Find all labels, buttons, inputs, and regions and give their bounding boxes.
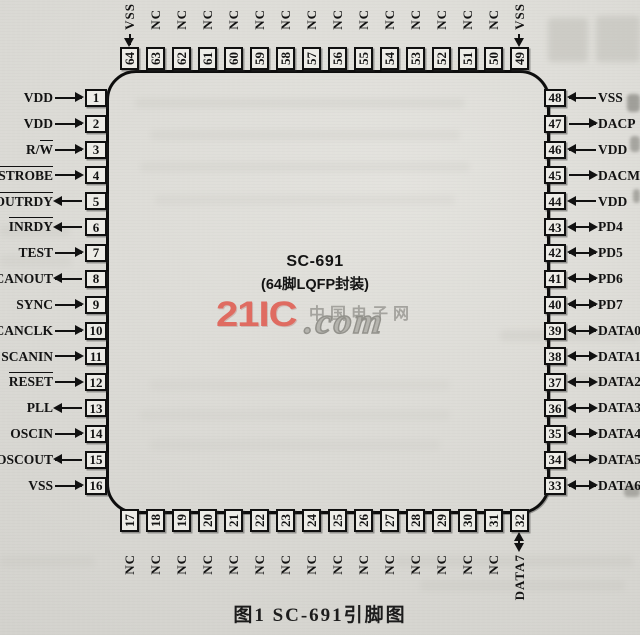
pin-number: 29	[435, 514, 448, 527]
pin: INRDY 6	[0, 214, 107, 240]
pin-number: 47	[549, 117, 562, 130]
pin-label: NC	[201, 9, 214, 30]
pin-label: NC	[253, 9, 266, 30]
pin-label: NC	[435, 9, 448, 30]
pin-number: 23	[279, 514, 292, 527]
pin: SCANCLK 10	[0, 318, 107, 344]
pin-direction-arrow	[569, 200, 596, 202]
pin-box: 14	[85, 425, 107, 443]
pin-direction-arrow	[129, 34, 131, 45]
pin-direction-arrow	[55, 278, 82, 280]
pin: 39 DATA0	[544, 318, 640, 344]
pin-number: 5	[93, 195, 100, 208]
pin-number: 53	[409, 52, 422, 65]
pin-number: 10	[90, 324, 103, 337]
chip-label-block: SC-691 (64脚LQFP封装)	[109, 253, 521, 294]
pin-box: 6	[85, 218, 107, 236]
pin-number: 57	[305, 52, 318, 65]
pin-box: 50	[484, 47, 503, 70]
pin: 29 NC	[428, 508, 454, 600]
pin-box: 42	[544, 244, 566, 262]
pin-box: 15	[85, 451, 107, 469]
pin-number: 22	[253, 514, 266, 527]
pin-number: 55	[357, 52, 370, 65]
pin-label: VSS	[28, 479, 53, 493]
pin-box: 35	[544, 425, 566, 443]
pin-label: NC	[305, 554, 318, 575]
pin-number: 20	[201, 514, 214, 527]
pin-direction-arrow	[569, 355, 596, 357]
pin-box: 55	[354, 47, 373, 70]
pin-label: STROBE	[0, 169, 53, 183]
pin-box: 11	[85, 347, 107, 365]
pin-number: 48	[549, 91, 562, 104]
pin-number: 11	[90, 350, 102, 363]
pin-number: 39	[549, 324, 562, 337]
pin-number: 32	[513, 514, 526, 527]
pin: 17 NC	[117, 508, 143, 600]
pin: NC 56	[325, 0, 351, 70]
pin-label: VSS	[513, 3, 526, 30]
pin-box: 12	[85, 373, 107, 391]
pin-box: 61	[198, 47, 217, 70]
pin-label: NC	[383, 554, 396, 575]
pin-label: NC	[175, 554, 188, 575]
pin-box: 10	[85, 322, 107, 340]
pin-box: 8	[85, 270, 107, 288]
pin-label: NC	[409, 554, 422, 575]
pin-row-bottom: 17 NC 18 NC 19 NC 20 NC	[117, 508, 532, 600]
pin: R/W 3	[0, 137, 107, 163]
pin-number: 62	[175, 52, 188, 65]
pin: NC 52	[428, 0, 454, 70]
pin-number: 24	[305, 514, 318, 527]
ink-bleed-smudge	[596, 16, 640, 62]
pin: VDD 1	[0, 85, 107, 111]
pin: NC 62	[169, 0, 195, 70]
pin-box: 36	[544, 399, 566, 417]
pin-direction-arrow	[569, 174, 596, 176]
pin-label: DATA4	[598, 427, 640, 441]
pin-direction-arrow	[55, 174, 82, 176]
pin-box: 58	[276, 47, 295, 70]
pin: 20 NC	[195, 508, 221, 600]
pin-number: 15	[90, 453, 103, 466]
pin-label: SCANIN	[1, 350, 53, 364]
pin-label: NC	[331, 554, 344, 575]
pin-box: 53	[406, 47, 425, 70]
pin-box: 45	[544, 166, 566, 184]
pin: STROBE 4	[0, 163, 107, 189]
pin-number: 58	[279, 52, 292, 65]
pin-label: RESET	[9, 375, 53, 389]
pin-number: 18	[149, 514, 162, 527]
pin-label: NC	[253, 554, 266, 575]
ink-bleed-smudge	[548, 18, 588, 62]
pin-box: 39	[544, 322, 566, 340]
pin-label: VSS	[123, 3, 136, 30]
pin-label: NC	[487, 554, 500, 575]
pin-number: 9	[93, 298, 100, 311]
pin-label: DATA6	[598, 479, 640, 493]
pin-row-top: VSS 64 NC 63 NC 62 NC 61	[117, 0, 532, 70]
pin-label: OSCIN	[10, 427, 53, 441]
pin-box: 33	[544, 477, 566, 495]
pin: 26 NC	[350, 508, 376, 600]
pin: 18 NC	[143, 508, 169, 600]
pin-label: NC	[435, 554, 448, 575]
pin-direction-arrow	[569, 97, 596, 99]
pin-box: 32	[510, 509, 529, 532]
pin: 34 DATA5	[544, 447, 640, 473]
pin-box: 17	[120, 509, 139, 532]
pin-direction-arrow	[55, 252, 82, 254]
pin-label: NC	[331, 9, 344, 30]
pin-box: 44	[544, 192, 566, 210]
pin-label: NC	[175, 9, 188, 30]
pin-label: DATA3	[598, 401, 640, 415]
pin-label: SCANOUT	[0, 272, 53, 286]
pin-direction-arrow	[569, 304, 596, 306]
pin-direction-arrow	[569, 330, 596, 332]
pin: VSS 49	[506, 0, 532, 70]
pin-label: SYNC	[16, 298, 53, 312]
pin-number: 37	[549, 376, 562, 389]
pin: NC 55	[350, 0, 376, 70]
pin-label: NC	[149, 554, 162, 575]
pin-box: 19	[172, 509, 191, 532]
pin-box: 38	[544, 347, 566, 365]
pin-box: 59	[250, 47, 269, 70]
pin: 46 VDD	[544, 137, 640, 163]
pin-box: 30	[458, 509, 477, 532]
pin-label: NC	[461, 9, 474, 30]
pin-direction-arrow	[55, 407, 82, 409]
pin-number: 7	[93, 246, 100, 259]
pin-box: 48	[544, 89, 566, 107]
pin-number: 61	[201, 52, 214, 65]
pin-label: NC	[227, 9, 240, 30]
pin-label: NC	[201, 554, 214, 575]
pin-number: 38	[549, 350, 562, 363]
pin-box: 51	[458, 47, 477, 70]
pin-number: 1	[93, 91, 100, 104]
pin-label: NC	[123, 554, 136, 575]
pin-number: 51	[461, 52, 474, 65]
pin-box: 13	[85, 399, 107, 417]
pin-number: 35	[549, 427, 562, 440]
pin: 28 NC	[402, 508, 428, 600]
pin: 41 PD6	[544, 266, 640, 292]
pin: PLL 13	[0, 395, 107, 421]
pin: 45 DACM	[544, 163, 640, 189]
pin-label: DATA0	[598, 324, 640, 338]
pin-box: 47	[544, 115, 566, 133]
figure-caption: 图1 SC-691引脚图	[0, 600, 640, 627]
chip-body: SC-691 (64脚LQFP封装)	[106, 70, 550, 514]
pin-box: 64	[120, 47, 139, 70]
pin-number: 25	[331, 514, 344, 527]
pin-direction-arrow	[55, 226, 82, 228]
pin: NC 50	[480, 0, 506, 70]
pin: 30 NC	[454, 508, 480, 600]
pin-box: 43	[544, 218, 566, 236]
pin-number: 33	[549, 479, 562, 492]
pin: NC 58	[273, 0, 299, 70]
pin-direction-arrow	[55, 304, 82, 306]
pin-label: NC	[357, 9, 370, 30]
pin-direction-arrow	[569, 149, 596, 151]
pin-label: NC	[279, 554, 292, 575]
pin-label: VDD	[24, 117, 53, 131]
pin-label: NC	[383, 9, 396, 30]
pin-box: 41	[544, 270, 566, 288]
pin-label: R/W	[26, 143, 53, 157]
pin: 33 DATA6	[544, 473, 640, 499]
pin-direction-arrow	[55, 97, 82, 99]
pin-direction-arrow	[55, 459, 82, 461]
pin-label: DACP	[598, 117, 636, 131]
pin-number: 30	[461, 514, 474, 527]
pin: OSCIN 14	[0, 421, 107, 447]
pin: OUTRDY 5	[0, 188, 107, 214]
pin-number: 43	[549, 221, 562, 234]
pin: 19 NC	[169, 508, 195, 600]
pin: 23 NC	[273, 508, 299, 600]
pin-box: 1	[85, 89, 107, 107]
pin-number: 28	[409, 514, 422, 527]
pin-box: 31	[484, 509, 503, 532]
pin-number: 63	[149, 52, 162, 65]
pin: 27 NC	[376, 508, 402, 600]
pin: 43 PD4	[544, 214, 640, 240]
pin-box: 20	[198, 509, 217, 532]
pin-box: 49	[510, 47, 529, 70]
pin-box: 22	[250, 509, 269, 532]
pin-box: 46	[544, 141, 566, 159]
pin-box: 16	[85, 477, 107, 495]
pin: NC 61	[195, 0, 221, 70]
pin-label: OUTRDY	[0, 195, 53, 209]
pin-number: 59	[253, 52, 266, 65]
pin: NC 59	[247, 0, 273, 70]
pin-number: 26	[357, 514, 370, 527]
pin: NC 54	[376, 0, 402, 70]
pin-number: 54	[383, 52, 396, 65]
pin-box: 24	[302, 509, 321, 532]
pin-number: 14	[90, 427, 103, 440]
pin-direction-arrow	[569, 485, 596, 487]
pin-number: 8	[93, 272, 100, 285]
pin-label: TEST	[18, 246, 53, 260]
pin-number: 52	[435, 52, 448, 65]
pin-label: SCANCLK	[0, 324, 53, 338]
pin: 47 DACP	[544, 111, 640, 137]
pin-direction-arrow	[55, 433, 82, 435]
pin-number: 46	[549, 143, 562, 156]
pin-direction-arrow	[518, 34, 520, 45]
pin: 36 DATA3	[544, 395, 640, 421]
pin-label: NC	[279, 9, 292, 30]
pin-direction-arrow	[569, 381, 596, 383]
pin-number: 17	[123, 514, 136, 527]
pin-number: 64	[123, 52, 136, 65]
pin-box: 60	[224, 47, 243, 70]
pin-direction-arrow	[55, 149, 82, 151]
pin: NC 63	[143, 0, 169, 70]
pin-direction-arrow	[569, 123, 596, 125]
pin-direction-arrow	[55, 485, 82, 487]
pin-number: 6	[93, 221, 100, 234]
pin-number: 45	[549, 169, 562, 182]
pin-direction-arrow	[569, 459, 596, 461]
chip-name: SC-691	[109, 253, 521, 271]
pin-direction-arrow	[55, 200, 82, 202]
pin-label: PLL	[27, 401, 53, 415]
pin-box: 34	[544, 451, 566, 469]
pin-label: DATA7	[513, 554, 526, 600]
pin: SCANIN 11	[0, 343, 107, 369]
pin-box: 62	[172, 47, 191, 70]
pin-direction-arrow	[55, 330, 82, 332]
pin: OSCOUT 15	[0, 447, 107, 473]
pin-box: 3	[85, 141, 107, 159]
pin-number: 56	[331, 52, 344, 65]
pin-number: 36	[549, 402, 562, 415]
pin-box: 52	[432, 47, 451, 70]
pin-box: 25	[328, 509, 347, 532]
pin: VSS 64	[117, 0, 143, 70]
pin: 37 DATA2	[544, 369, 640, 395]
pin-number: 3	[93, 143, 100, 156]
pin-direction-arrow	[569, 433, 596, 435]
pin-number: 21	[227, 514, 240, 527]
pin-label: VSS	[598, 91, 623, 105]
pin: NC 51	[454, 0, 480, 70]
pin-box: 5	[85, 192, 107, 210]
pin-label: DACM	[598, 169, 640, 183]
pin-box: 21	[224, 509, 243, 532]
pin-column-right: 48 VSS 47 DACP 46 VDD 45 DACM	[544, 85, 640, 499]
pin: NC 57	[299, 0, 325, 70]
pin-label: OSCOUT	[0, 453, 53, 467]
pin-box: 26	[354, 509, 373, 532]
pin-direction-arrow	[55, 123, 82, 125]
pin: 48 VSS	[544, 85, 640, 111]
pin: 25 NC	[325, 508, 351, 600]
pin-box: 37	[544, 373, 566, 391]
pin: 44 VDD	[544, 188, 640, 214]
pin: 40 PD7	[544, 292, 640, 318]
pin-number: 2	[93, 117, 100, 130]
pin-label: DATA1	[598, 350, 640, 364]
pin-box: 4	[85, 166, 107, 184]
pin-column-left: VDD 1 VDD 2 R/W 3 STROBE 4	[0, 85, 107, 499]
pin: VSS 16	[0, 473, 107, 499]
pin-label: NC	[149, 9, 162, 30]
pin-number: 19	[175, 514, 188, 527]
pin-box: 29	[432, 509, 451, 532]
pin: NC 60	[221, 0, 247, 70]
pin-label: DATA5	[598, 453, 640, 467]
ink-bleed-smudge	[0, 556, 95, 567]
pin-label: VDD	[598, 143, 627, 157]
pin-label: VDD	[598, 195, 627, 209]
pin-box: 57	[302, 47, 321, 70]
pin-box: 18	[146, 509, 165, 532]
pin-label: NC	[409, 9, 422, 30]
pin-label: PD5	[598, 246, 623, 260]
pin-number: 42	[549, 246, 562, 259]
pin: 21 NC	[221, 508, 247, 600]
pin-label: PD7	[598, 298, 623, 312]
pin: 24 NC	[299, 508, 325, 600]
pin-direction-arrow	[55, 381, 82, 383]
pin: TEST 7	[0, 240, 107, 266]
pin-label: PD4	[598, 220, 623, 234]
pin: VDD 2	[0, 111, 107, 137]
pin: SCANOUT 8	[0, 266, 107, 292]
pin-direction-arrow	[518, 534, 520, 550]
pin-box: 56	[328, 47, 347, 70]
pin-number: 4	[93, 169, 100, 182]
pin-box: 28	[406, 509, 425, 532]
pin-number: 49	[513, 52, 526, 65]
pin-number: 41	[549, 272, 562, 285]
pin-label: VDD	[24, 91, 53, 105]
pin-label: NC	[357, 554, 370, 575]
pin-label: NC	[461, 554, 474, 575]
pin-label: DATA2	[598, 375, 640, 389]
pin-label: PD6	[598, 272, 623, 286]
chip-package: (64脚LQFP封装)	[109, 273, 521, 294]
pin-label: NC	[227, 554, 240, 575]
pinout-figure: SC-691 (64脚LQFP封装) 21IC 中国电子网 .com VSS 6…	[0, 0, 640, 635]
pin-box: 40	[544, 296, 566, 314]
pin-number: 50	[487, 52, 500, 65]
pin: 32 DATA7	[506, 508, 532, 600]
pin-number: 34	[549, 453, 562, 466]
pin-number: 60	[227, 52, 240, 65]
pin-box: 9	[85, 296, 107, 314]
pin-direction-arrow	[569, 226, 596, 228]
pin-direction-arrow	[569, 278, 596, 280]
pin-box: 27	[380, 509, 399, 532]
pin-number: 16	[90, 479, 103, 492]
pin-direction-arrow	[569, 252, 596, 254]
pin: RESET 12	[0, 369, 107, 395]
pin-direction-arrow	[55, 355, 82, 357]
pin: 38 DATA1	[544, 343, 640, 369]
pin-number: 12	[90, 376, 103, 389]
pin-number: 31	[487, 514, 500, 527]
pin: SYNC 9	[0, 292, 107, 318]
pin-number: 40	[549, 298, 562, 311]
pin-box: 63	[146, 47, 165, 70]
pin-box: 23	[276, 509, 295, 532]
pin: 42 PD5	[544, 240, 640, 266]
pin: 35 DATA4	[544, 421, 640, 447]
pin-box: 54	[380, 47, 399, 70]
pin: 31 NC	[480, 508, 506, 600]
pin: NC 53	[402, 0, 428, 70]
pin-number: 13	[90, 402, 103, 415]
pin-number: 27	[383, 514, 396, 527]
pin-label: NC	[305, 9, 318, 30]
pin-label: INRDY	[9, 220, 53, 234]
pin: 22 NC	[247, 508, 273, 600]
pin-label: NC	[487, 9, 500, 30]
